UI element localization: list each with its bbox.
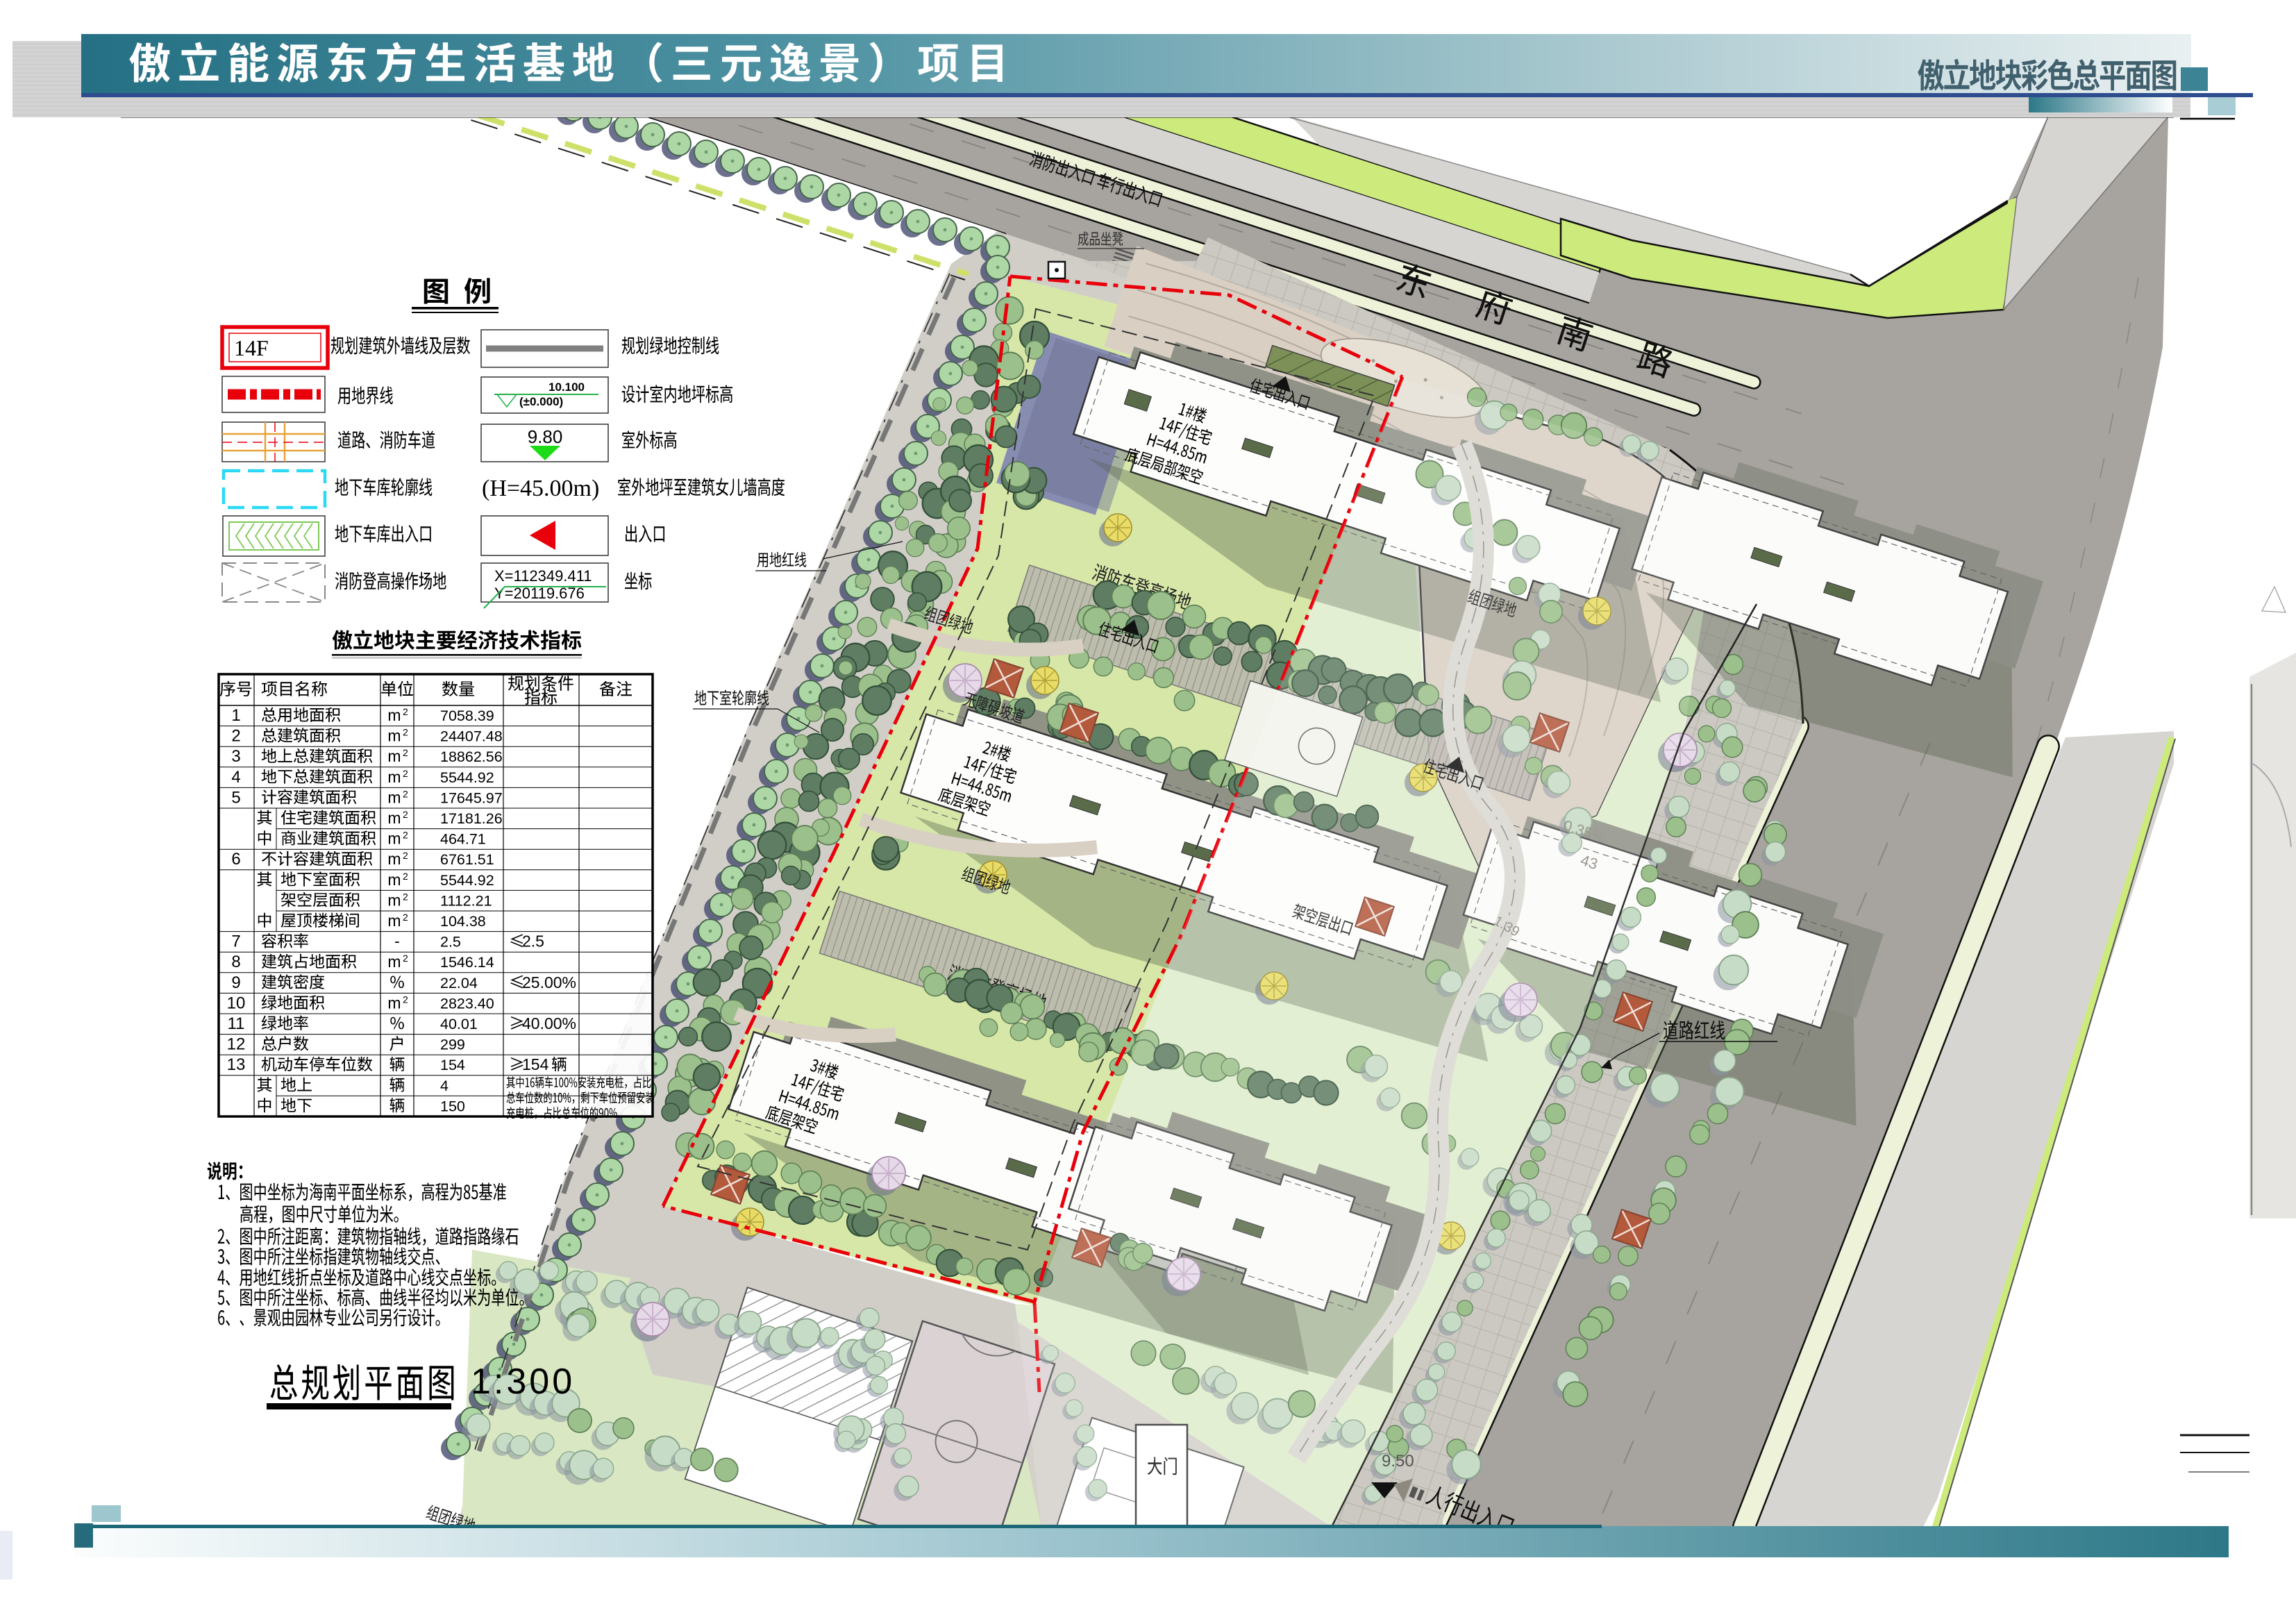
svg-text:9.80: 9.80 xyxy=(528,426,563,447)
svg-text:X=112349.411: X=112349.411 xyxy=(494,567,592,585)
svg-text:1546.14: 1546.14 xyxy=(440,954,494,971)
svg-text:154: 154 xyxy=(522,1055,549,1073)
svg-text:-: - xyxy=(394,932,400,951)
svg-text:17181.26: 17181.26 xyxy=(440,810,503,827)
svg-text:m: m xyxy=(387,994,401,1012)
svg-text:1112.21: 1112.21 xyxy=(440,892,492,909)
svg-text:m: m xyxy=(387,912,401,930)
svg-text:7: 7 xyxy=(231,932,240,951)
svg-text:4: 4 xyxy=(440,1078,449,1094)
svg-text:22.04: 22.04 xyxy=(440,975,478,991)
svg-text:2: 2 xyxy=(403,706,408,717)
svg-text:2: 2 xyxy=(403,809,408,820)
svg-text:154: 154 xyxy=(440,1057,465,1073)
svg-text:2: 2 xyxy=(403,768,408,779)
svg-text:m: m xyxy=(387,871,401,889)
svg-text:m: m xyxy=(387,747,401,765)
svg-text:464.71: 464.71 xyxy=(440,831,486,848)
svg-text:17645.97: 17645.97 xyxy=(440,789,503,806)
svg-text:2: 2 xyxy=(403,830,408,841)
svg-text:m: m xyxy=(387,788,401,806)
svg-text:2: 2 xyxy=(403,912,408,923)
svg-text:5: 5 xyxy=(231,788,240,807)
svg-text:7058.39: 7058.39 xyxy=(440,708,494,724)
svg-text:1: 1 xyxy=(231,706,240,725)
svg-text:m: m xyxy=(387,809,401,827)
svg-text:2: 2 xyxy=(403,788,408,799)
svg-text:2: 2 xyxy=(403,727,408,738)
svg-text:9.50: 9.50 xyxy=(1382,1452,1414,1471)
svg-text:(±0.000): (±0.000) xyxy=(519,395,563,408)
svg-text:1:300: 1:300 xyxy=(471,1362,575,1402)
svg-text:m: m xyxy=(387,768,401,786)
svg-text:25.00%: 25.00% xyxy=(522,973,576,991)
svg-text:18862.56: 18862.56 xyxy=(440,748,503,765)
svg-text:12: 12 xyxy=(227,1035,246,1054)
svg-text:m: m xyxy=(387,953,401,971)
svg-text:2: 2 xyxy=(403,891,408,902)
svg-text:m: m xyxy=(387,850,401,868)
svg-text:299: 299 xyxy=(440,1037,465,1053)
svg-text:2: 2 xyxy=(231,727,240,746)
svg-text:2: 2 xyxy=(403,747,408,758)
svg-text:2823.40: 2823.40 xyxy=(440,995,494,1012)
svg-text:6761.51: 6761.51 xyxy=(440,851,494,868)
svg-text:2.5: 2.5 xyxy=(522,932,544,951)
svg-text:40.01: 40.01 xyxy=(440,1016,478,1032)
svg-text:3: 3 xyxy=(231,747,240,766)
svg-text:2.5: 2.5 xyxy=(440,934,461,951)
svg-text:2: 2 xyxy=(403,953,408,964)
svg-text:14F: 14F xyxy=(234,335,269,360)
svg-text:104.38: 104.38 xyxy=(440,913,486,930)
svg-text:2: 2 xyxy=(403,994,408,1005)
svg-text:m: m xyxy=(387,727,401,745)
svg-text:m: m xyxy=(387,830,401,848)
svg-text:40.00%: 40.00% xyxy=(522,1014,576,1032)
svg-text:9: 9 xyxy=(231,973,240,992)
svg-text:10.100: 10.100 xyxy=(548,380,585,394)
svg-text:m: m xyxy=(387,706,401,724)
svg-text:10: 10 xyxy=(227,994,246,1012)
svg-text:2: 2 xyxy=(403,850,408,861)
svg-text:150: 150 xyxy=(440,1098,465,1114)
svg-text:4: 4 xyxy=(231,768,240,787)
svg-text:(H=45.00m): (H=45.00m) xyxy=(482,476,599,501)
svg-text:m: m xyxy=(387,891,401,909)
svg-text:8: 8 xyxy=(231,953,240,971)
svg-text:2: 2 xyxy=(403,871,408,882)
svg-text:13: 13 xyxy=(227,1055,246,1074)
svg-text:24407.48: 24407.48 xyxy=(440,728,503,745)
svg-text:5544.92: 5544.92 xyxy=(440,872,494,889)
svg-text:11: 11 xyxy=(228,1014,245,1033)
svg-text:6: 6 xyxy=(231,850,240,869)
svg-text:5544.92: 5544.92 xyxy=(440,769,494,786)
